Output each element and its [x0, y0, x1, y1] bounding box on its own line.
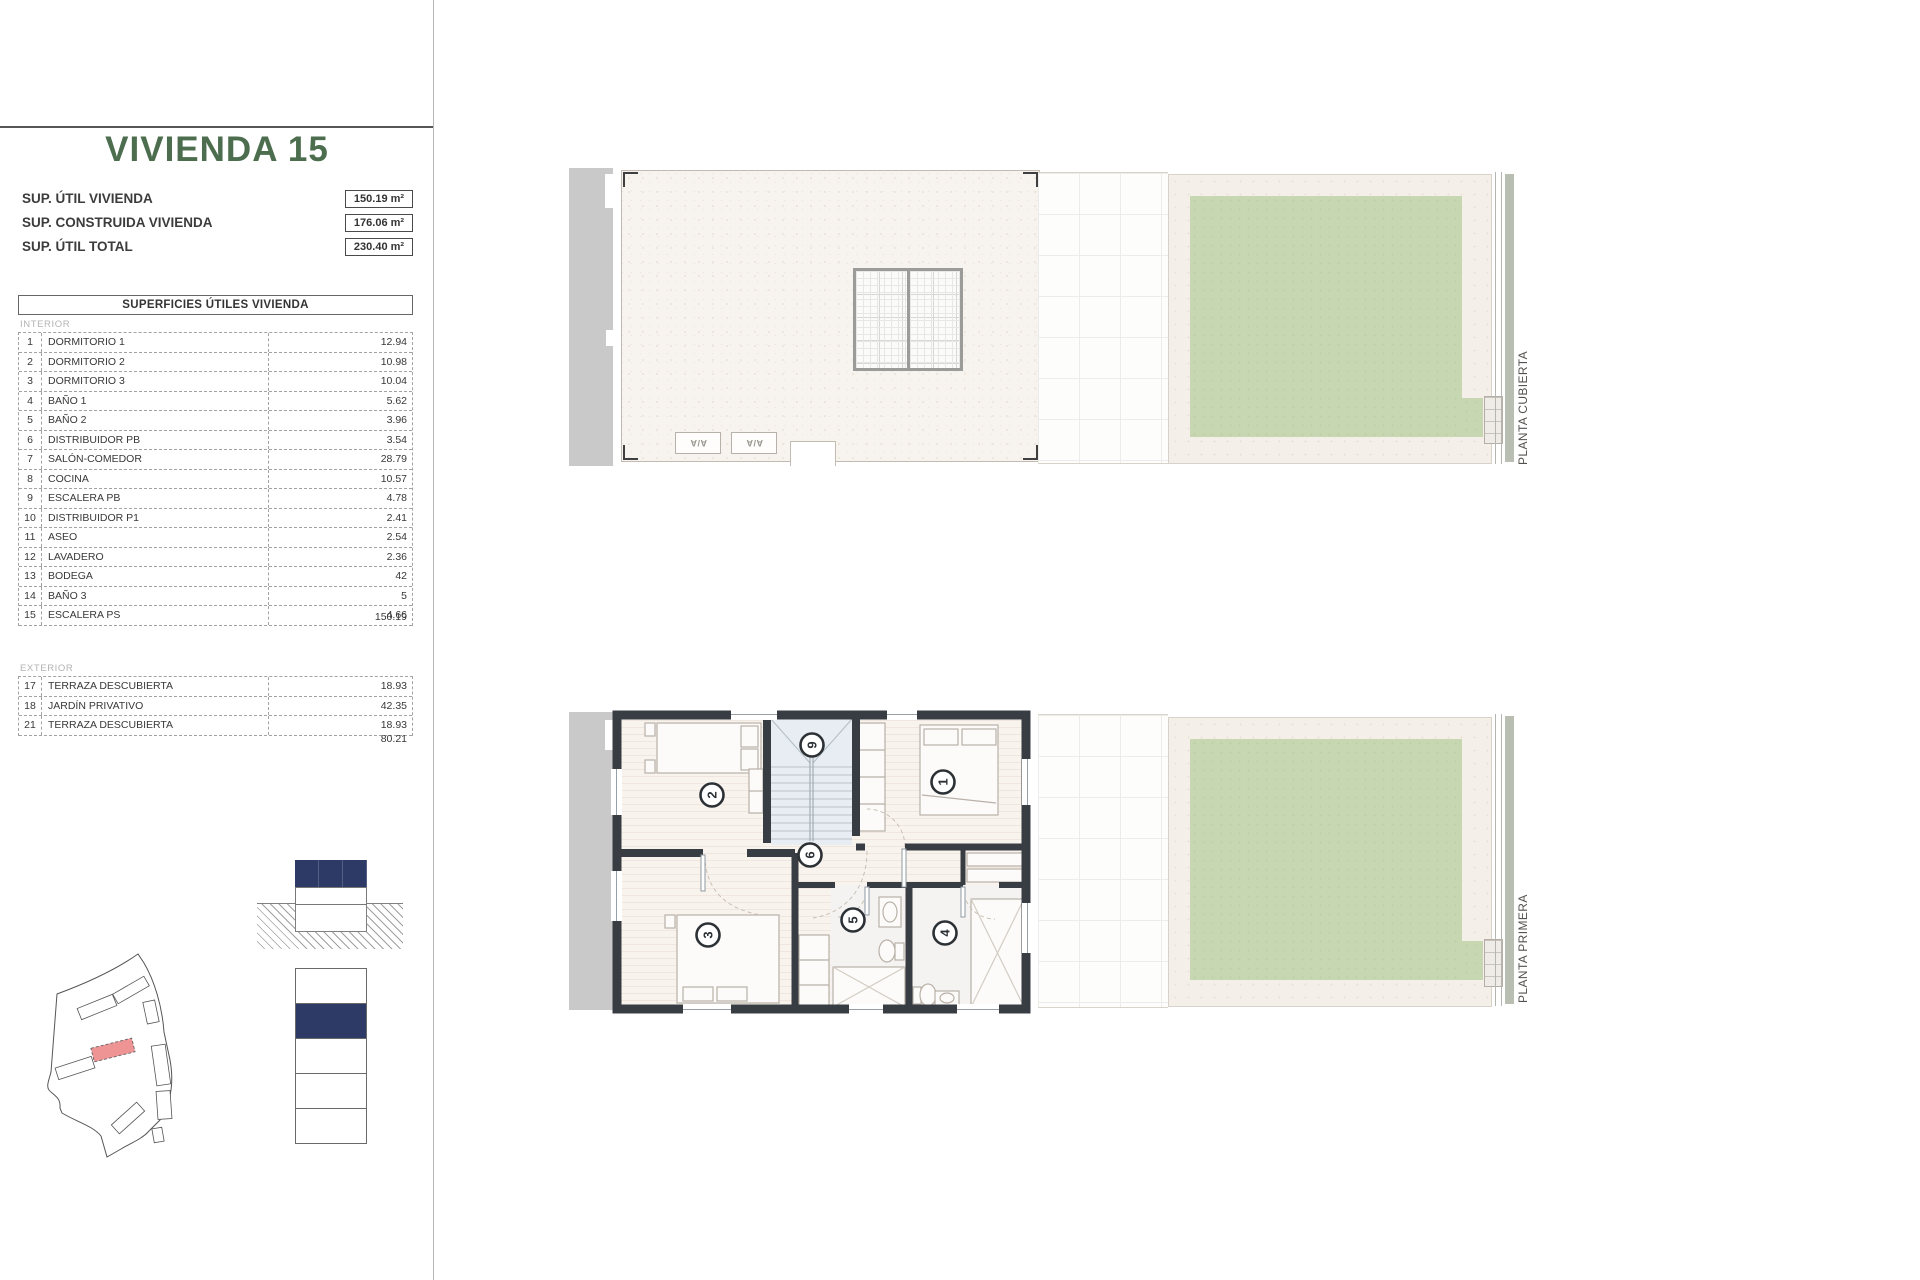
- table-row: 2DORMITORIO 210.98: [19, 353, 412, 373]
- table-row: 13BODEGA42: [19, 567, 412, 587]
- row-name: JARDÍN PRIVATIVO: [42, 697, 269, 716]
- summary-value: 230.40 m²: [345, 238, 413, 256]
- ac-unit-label: A/A: [746, 438, 763, 448]
- header-rule: [0, 126, 434, 128]
- skylight-pane: [856, 271, 907, 368]
- row-name: TERRAZA DESCUBIERTA: [42, 677, 269, 696]
- site-building: [152, 1127, 164, 1143]
- exterior-total: 80.21: [18, 733, 411, 745]
- summary-value: 176.06 m²: [345, 214, 413, 232]
- ac-unit: A/A: [675, 432, 721, 454]
- boundary-line: [1501, 714, 1502, 1006]
- row-number: 4: [19, 392, 42, 411]
- table-row: 7SALÓN-COMEDOR28.79: [19, 450, 412, 470]
- floor-row: [295, 1074, 367, 1109]
- table-row: 1DORMITORIO 112.94: [19, 333, 412, 353]
- plan-sheet: VIVIENDA 15 SUP. ÚTIL VIVIENDA 150.19 m²…: [0, 0, 1920, 1280]
- boundary-line: [1495, 172, 1496, 464]
- row-name: ESCALERA PB: [42, 489, 269, 508]
- table-row: 8COCINA10.57: [19, 470, 412, 490]
- roof-notch: [790, 441, 836, 466]
- row-value: 5.62: [269, 392, 412, 411]
- floor-row: [295, 1109, 367, 1144]
- table-row: 14BAÑO 35: [19, 587, 412, 607]
- row-name: SALÓN-COMEDOR: [42, 450, 269, 469]
- row-name: LAVADERO: [42, 548, 269, 567]
- room-number: 5: [842, 909, 865, 932]
- summary-label: SUP. CONSTRUIDA VIVIENDA: [22, 215, 213, 230]
- svg-text:3: 3: [701, 931, 716, 938]
- row-value: 3.96: [269, 411, 412, 430]
- section-diagram-ground-floor: [295, 887, 367, 905]
- row-name: DORMITORIO 1: [42, 333, 269, 352]
- row-number: 7: [19, 450, 42, 469]
- table-row: 17TERRAZA DESCUBIERTA18.93: [19, 677, 412, 697]
- row-number: 12: [19, 548, 42, 567]
- row-name: TERRAZA DESCUBIERTA: [42, 716, 269, 735]
- row-number: 3: [19, 372, 42, 391]
- room-number: 3: [697, 924, 720, 947]
- table-row: 12LAVADERO2.36: [19, 548, 412, 568]
- summary-row: SUP. ÚTIL VIVIENDA 150.19 m²: [22, 190, 414, 214]
- interior-section-label: INTERIOR: [20, 319, 70, 330]
- section-diagram-highlighted-floor: [295, 860, 367, 887]
- row-value: 10.98: [269, 353, 412, 372]
- row-value: 2.36: [269, 548, 412, 567]
- private-garden-ext-top: [1462, 398, 1483, 437]
- row-value: 10.04: [269, 372, 412, 391]
- summary-label: SUP. ÚTIL VIVIENDA: [22, 191, 153, 206]
- skylight-window: [853, 268, 963, 371]
- row-value: 4.78: [269, 489, 412, 508]
- row-value: 28.79: [269, 450, 412, 469]
- svg-text:1: 1: [936, 778, 951, 785]
- row-number: 2: [19, 353, 42, 372]
- row-value: 18.93: [269, 716, 412, 735]
- row-name: BAÑO 2: [42, 411, 269, 430]
- table-row: 5BAÑO 23.96: [19, 411, 412, 431]
- floor-row-highlighted: [295, 1004, 367, 1039]
- row-number: 17: [19, 677, 42, 696]
- row-number: 9: [19, 489, 42, 508]
- summary-value: 150.19 m²: [345, 190, 413, 208]
- row-value: 2.54: [269, 528, 412, 547]
- surface-summary: SUP. ÚTIL VIVIENDA 150.19 m² SUP. CONSTR…: [22, 190, 414, 262]
- site-building: [156, 1091, 172, 1120]
- ac-unit: A/A: [731, 432, 777, 454]
- ac-unit-label: A/A: [690, 438, 707, 448]
- exterior-table: 17TERRAZA DESCUBIERTA18.9318JARDÍN PRIVA…: [18, 676, 413, 736]
- summary-row: SUP. CONSTRUIDA VIVIENDA 176.06 m²: [22, 214, 414, 238]
- svg-text:4: 4: [938, 929, 953, 937]
- private-garden-ext-bottom: [1462, 941, 1483, 980]
- row-value: 2.41: [269, 509, 412, 528]
- row-name: BAÑO 1: [42, 392, 269, 411]
- row-value: 42.35: [269, 697, 412, 716]
- section-diagram-basement: [295, 903, 367, 932]
- boundary-line: [1495, 714, 1496, 1006]
- svg-text:2: 2: [705, 791, 720, 798]
- table-row: 11ASEO2.54: [19, 528, 412, 548]
- site-key-plan: [33, 950, 211, 1165]
- row-name: DORMITORIO 2: [42, 353, 269, 372]
- plan-label-cubierta: PLANTA CUBIERTA: [1512, 350, 1534, 466]
- row-number: 13: [19, 567, 42, 586]
- row-number: 6: [19, 431, 42, 450]
- exterior-section-label: EXTERIOR: [20, 663, 73, 674]
- roof-deck: [621, 170, 1040, 462]
- row-value: 42: [269, 567, 412, 586]
- summary-row: SUP. ÚTIL TOTAL 230.40 m²: [22, 238, 414, 262]
- corner-ticks: [622, 171, 1039, 461]
- svg-text:6: 6: [803, 851, 818, 858]
- first-floor-plan: 9 2 1 6 5 3 4: [565, 703, 1040, 1018]
- row-number: 11: [19, 528, 42, 547]
- row-name: DISTRIBUIDOR P1: [42, 509, 269, 528]
- row-value: 18.93: [269, 677, 412, 696]
- row-number: 1: [19, 333, 42, 352]
- row-name: ASEO: [42, 528, 269, 547]
- row-number: 18: [19, 697, 42, 716]
- covered-terrace-bottom: [1038, 714, 1168, 1008]
- row-name: DORMITORIO 3: [42, 372, 269, 391]
- private-garden-bottom: [1190, 739, 1462, 980]
- svg-text:5: 5: [846, 916, 861, 923]
- interior-total: 150.19: [18, 611, 411, 623]
- room-number: 1: [932, 771, 955, 794]
- row-name: DISTRIBUIDOR PB: [42, 431, 269, 450]
- room-number: 6: [799, 844, 822, 867]
- row-name: BAÑO 3: [42, 587, 269, 606]
- room-number: 4: [934, 922, 957, 945]
- street-notch: [606, 330, 613, 346]
- row-name: BODEGA: [42, 567, 269, 586]
- interior-table: 1DORMITORIO 112.942DORMITORIO 210.983DOR…: [18, 332, 413, 626]
- panel-divider: [433, 0, 434, 1280]
- room-number: 9: [801, 734, 824, 757]
- row-value: 3.54: [269, 431, 412, 450]
- skylight-pane: [910, 271, 961, 368]
- street-notch: [605, 174, 613, 208]
- private-garden-top: [1190, 196, 1462, 437]
- row-number: 10: [19, 509, 42, 528]
- row-name: COCINA: [42, 470, 269, 489]
- table-row: 18JARDÍN PRIVATIVO42.35: [19, 697, 412, 717]
- table-row: 4BAÑO 15.62: [19, 392, 412, 412]
- table-row: 10DISTRIBUIDOR P12.41: [19, 509, 412, 529]
- floor-row: [295, 968, 367, 1004]
- row-value: 10.57: [269, 470, 412, 489]
- plan-label-primera: PLANTA PRIMERA: [1512, 890, 1534, 1008]
- floor-stack-diagram: [295, 968, 367, 1144]
- row-value: 5: [269, 587, 412, 606]
- room-number: 2: [701, 784, 724, 807]
- page-title: VIVIENDA 15: [0, 130, 434, 170]
- row-number: 21: [19, 716, 42, 735]
- floor-row: [295, 1039, 367, 1074]
- row-value: 12.94: [269, 333, 412, 352]
- table-row: 6DISTRIBUIDOR PB3.54: [19, 431, 412, 451]
- row-number: 14: [19, 587, 42, 606]
- street-strip: [569, 168, 613, 466]
- covered-terrace-top: [1038, 172, 1168, 464]
- table-row: 9ESCALERA PB4.78: [19, 489, 412, 509]
- row-number: 5: [19, 411, 42, 430]
- row-number: 8: [19, 470, 42, 489]
- boundary-line: [1501, 172, 1502, 464]
- table-title: SUPERFICIES ÚTILES VIVIENDA: [18, 295, 413, 315]
- summary-label: SUP. ÚTIL TOTAL: [22, 239, 133, 254]
- table-row: 3DORMITORIO 310.04: [19, 372, 412, 392]
- svg-text:9: 9: [805, 741, 820, 748]
